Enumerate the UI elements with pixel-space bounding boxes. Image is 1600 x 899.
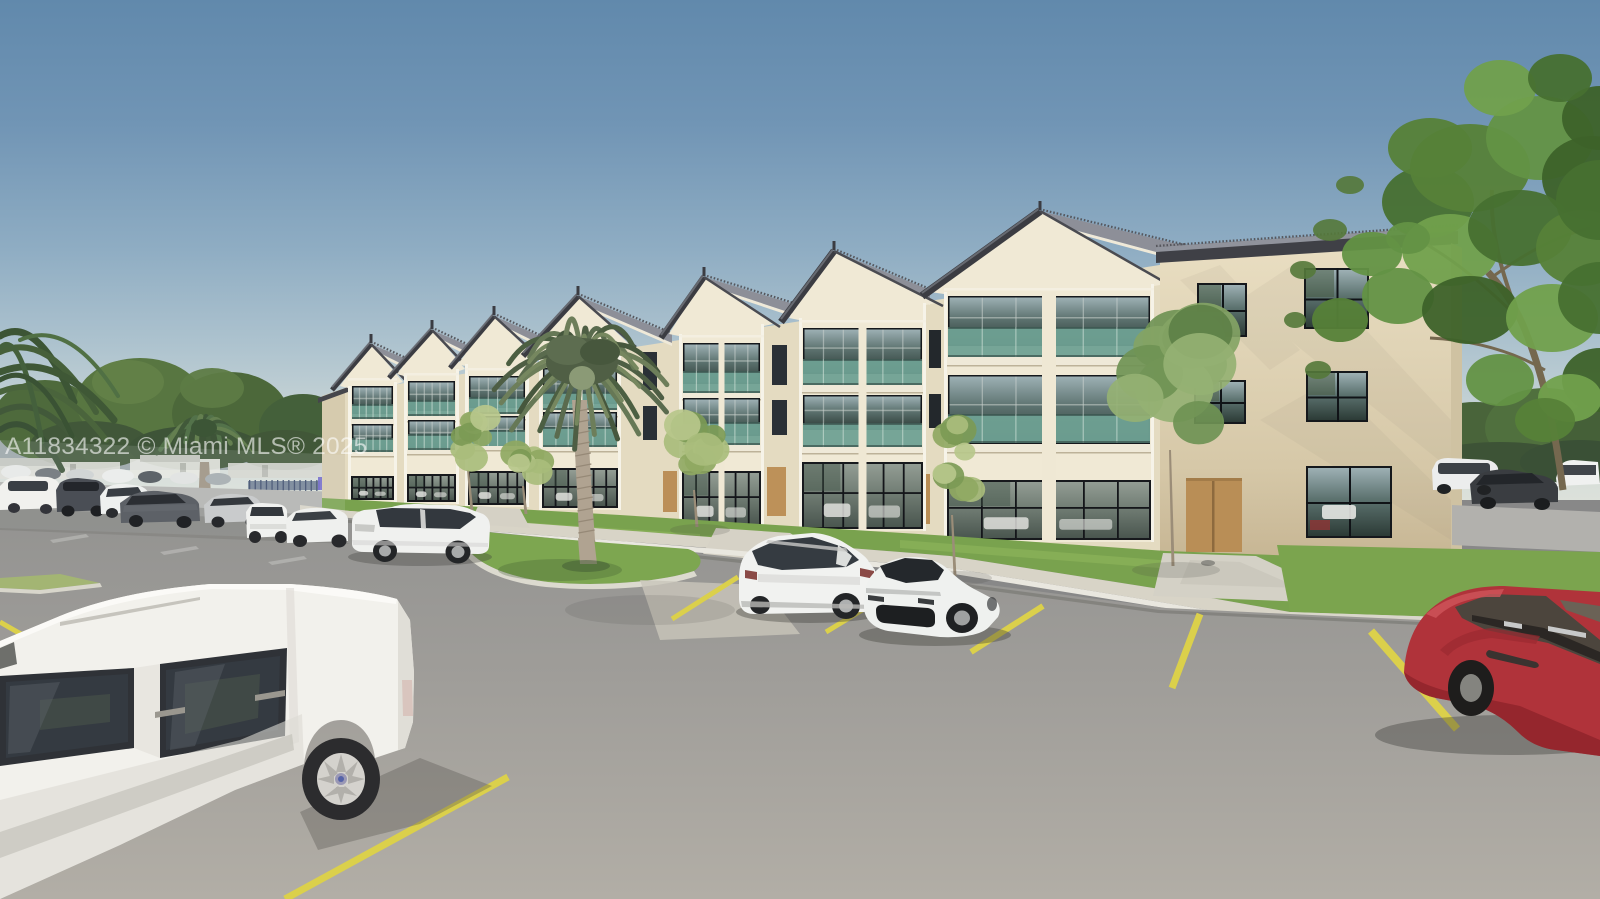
svg-text:A11834322 © Miami MLS® 2025: A11834322 © Miami MLS® 2025 xyxy=(5,433,367,460)
